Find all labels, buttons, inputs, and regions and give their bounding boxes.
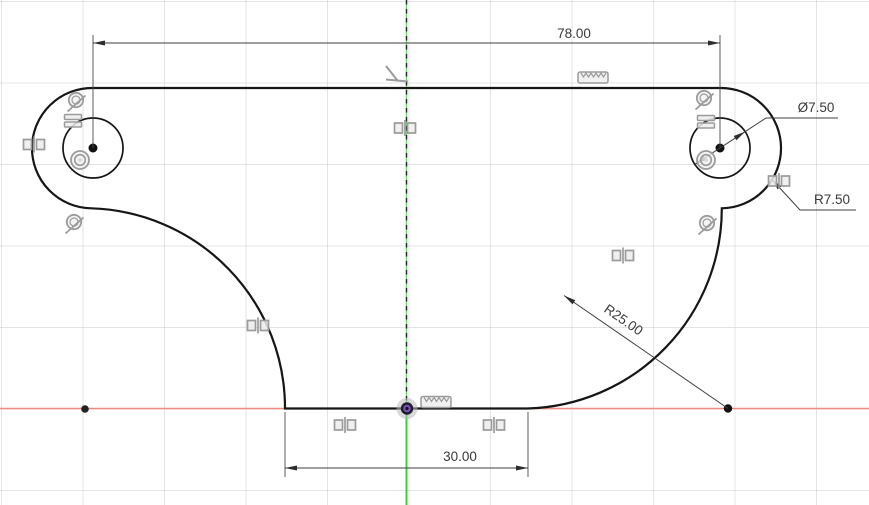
left-arc-center-point[interactable]	[81, 405, 89, 413]
symmetry-icon[interactable]	[24, 137, 45, 153]
tangent-icon[interactable]	[66, 215, 84, 234]
tangent-icon[interactable]	[696, 91, 714, 110]
symmetry-icon[interactable]	[248, 318, 269, 334]
dimension-hole-spacing-label[interactable]: 78.00	[557, 26, 591, 41]
ruler-icon[interactable]	[421, 397, 451, 408]
sketch-canvas: 78.00 30.00 Ø7.50 R7.50 R25.00	[0, 0, 869, 505]
origin-point[interactable]	[397, 398, 418, 419]
symmetry-icon[interactable]	[484, 417, 505, 433]
symmetry-icon[interactable]	[335, 417, 356, 433]
tangent-icon[interactable]	[699, 216, 717, 235]
dimension-end-radius-label[interactable]: R7.50	[814, 192, 850, 207]
symmetry-icon[interactable]	[395, 120, 416, 136]
dimension-side-radius-label[interactable]: R25.00	[601, 301, 645, 338]
dimension-hole-diameter-label[interactable]: Ø7.50	[798, 100, 835, 115]
symmetry-icon[interactable]	[769, 173, 790, 189]
symmetry-icon[interactable]	[613, 248, 634, 264]
concentric-icon[interactable]	[71, 151, 89, 169]
sketch-svg: 78.00 30.00 Ø7.50 R7.50 R25.00	[0, 0, 869, 505]
dimension-base-width-label[interactable]: 30.00	[443, 449, 477, 464]
concentric-icon[interactable]	[697, 151, 715, 169]
perpendicular-icon[interactable]	[386, 66, 408, 82]
ruler-icon[interactable]	[578, 72, 608, 83]
dimension-side-radius[interactable]: R25.00	[564, 296, 728, 409]
tangent-icon[interactable]	[68, 93, 86, 112]
